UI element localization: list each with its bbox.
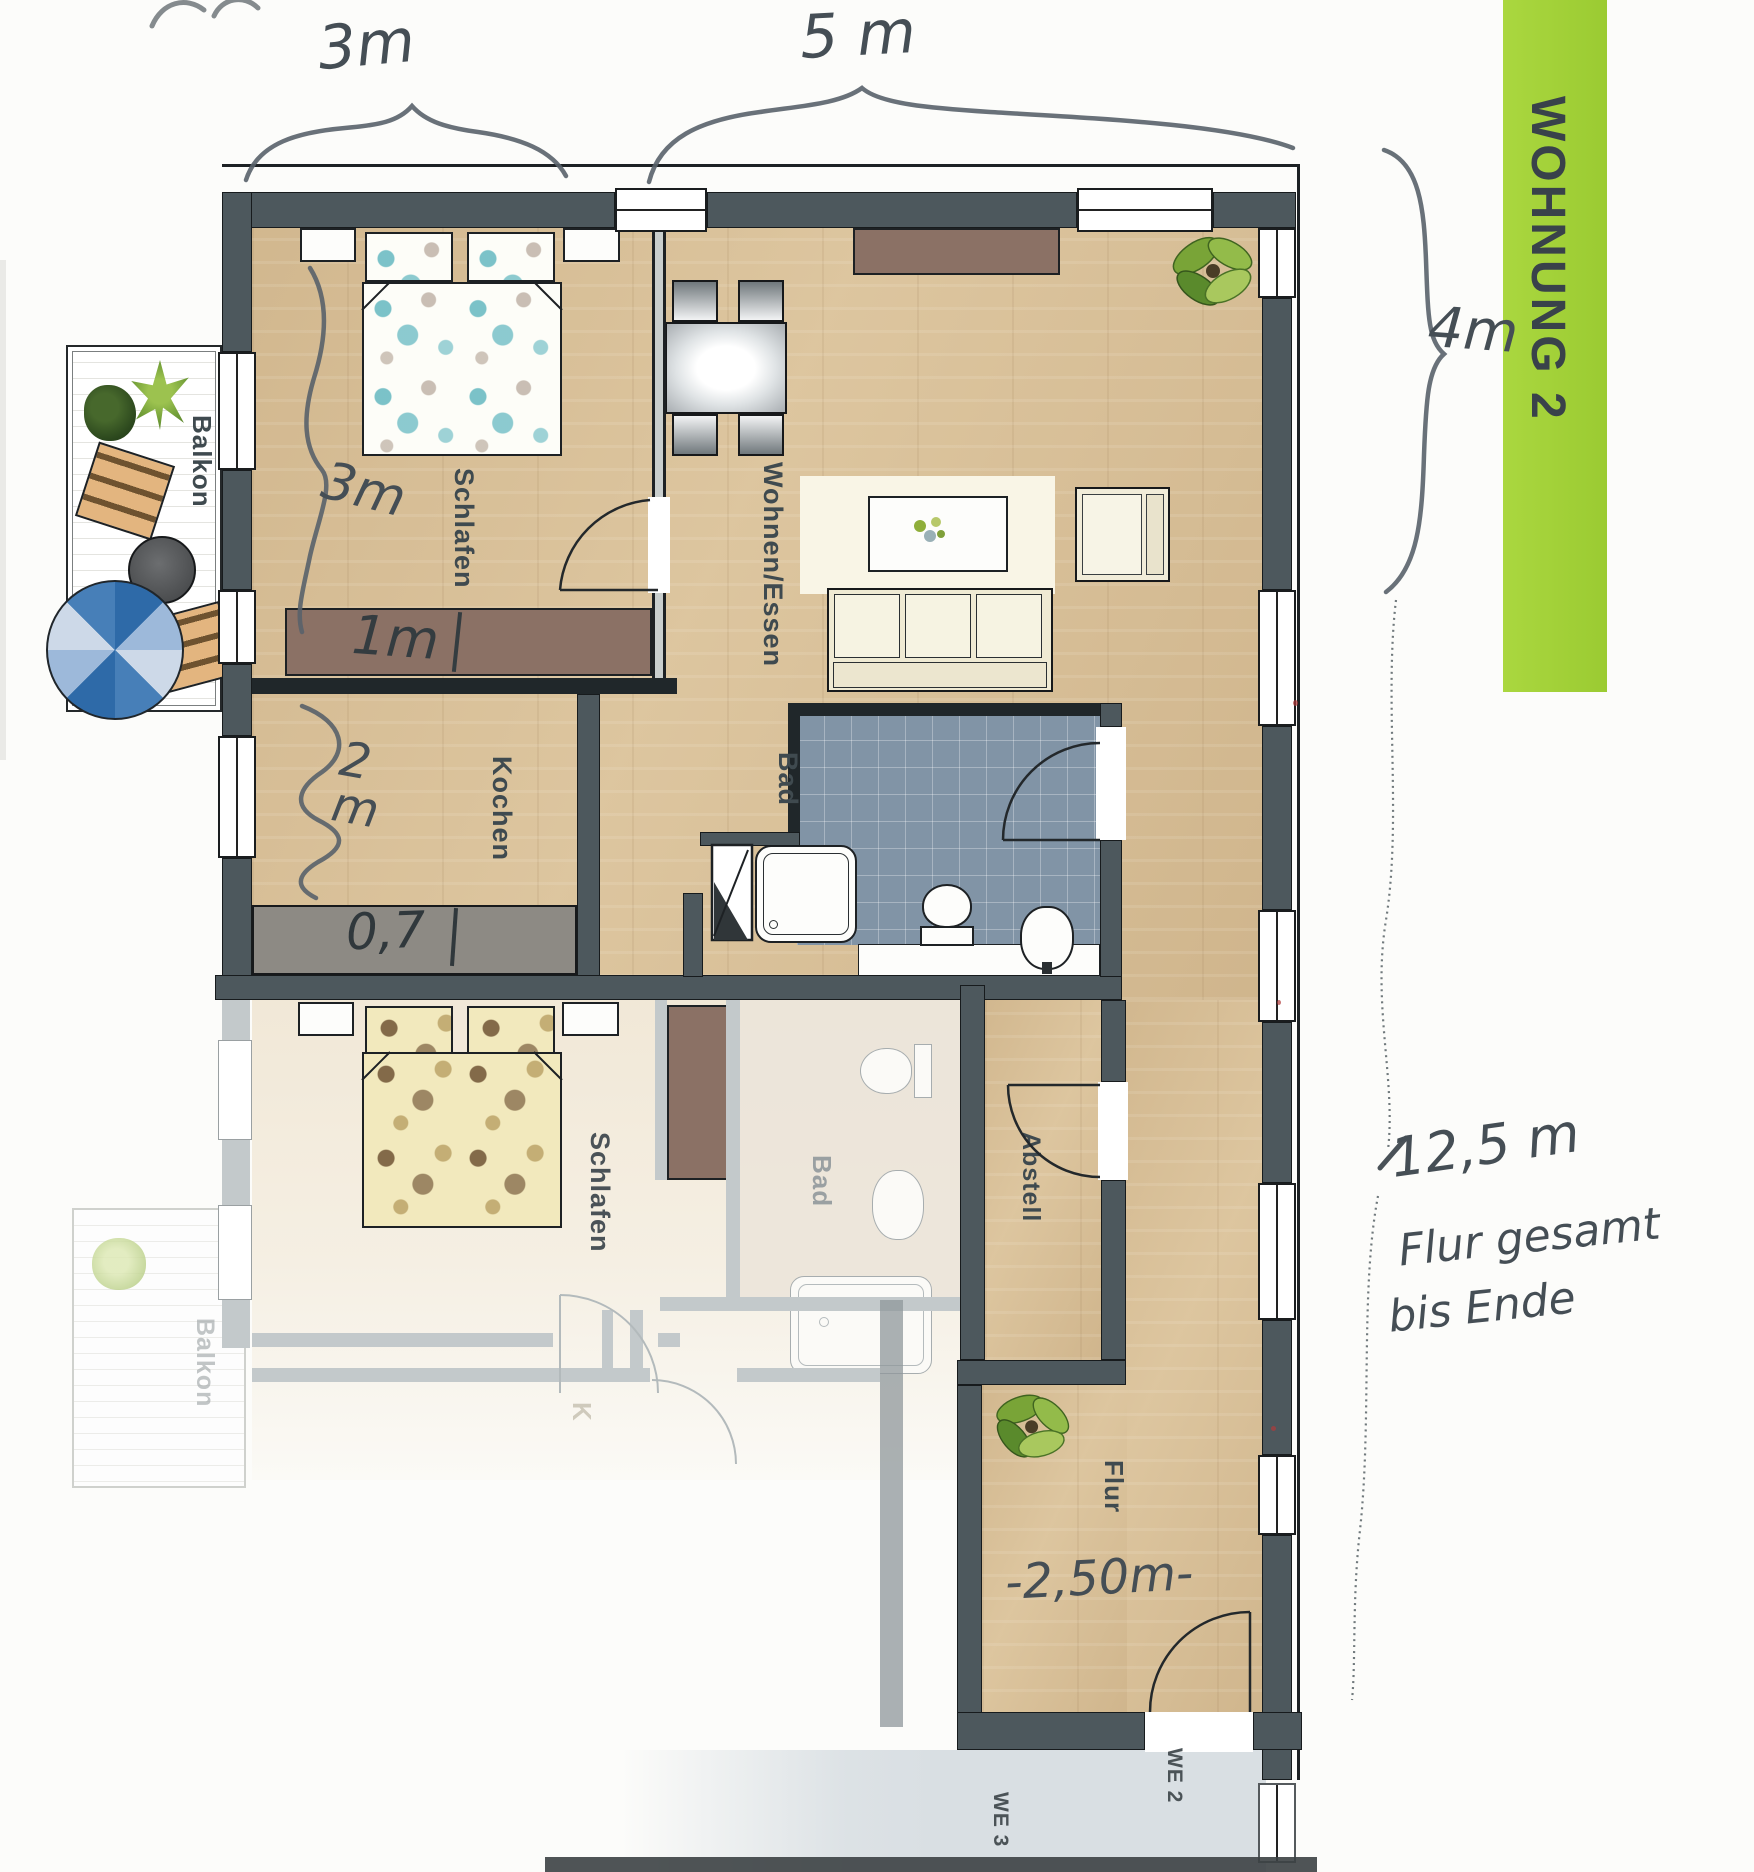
- bed-pillow: [365, 232, 453, 282]
- window: [1077, 188, 1213, 232]
- parasol-icon: [46, 580, 184, 720]
- wall-faded: [602, 1310, 613, 1370]
- armchair-seat: [1082, 494, 1142, 575]
- dining-chair: [738, 414, 784, 456]
- nightstand: [298, 1002, 354, 1036]
- window-faded: [218, 1040, 252, 1140]
- room-label-schlafen2: Schlafen: [584, 1132, 615, 1253]
- wall-faded: [660, 1297, 960, 1311]
- wall-bad1-right: [1100, 840, 1122, 977]
- wall-faded: [737, 1368, 880, 1382]
- door-opening: [1096, 727, 1126, 840]
- dining-chair: [672, 414, 718, 456]
- wall-bottom: [957, 1712, 1145, 1750]
- sofa-cushion: [976, 594, 1042, 658]
- wall-abstell-left: [960, 985, 985, 1360]
- floor-plan-scan: Schlafen Wohnen/Essen Kochen Bad Schlafe…: [0, 0, 1754, 1872]
- wall-kochen-right: [577, 694, 600, 1000]
- window: [1258, 228, 1296, 298]
- dining-chair: [738, 280, 784, 322]
- bush-icon: [92, 1238, 146, 1290]
- double-bed: [362, 1052, 562, 1228]
- window: [1258, 1183, 1296, 1320]
- annotation-flur-total-2: Flur gesamt: [1396, 1198, 1662, 1276]
- window: [1258, 590, 1296, 726]
- wall-faded: [252, 1368, 650, 1382]
- wall-bad1-top: [788, 703, 1122, 716]
- toilet-icon: [922, 884, 972, 928]
- sofa: [827, 588, 1053, 692]
- sofa-cushion: [905, 594, 971, 658]
- annotation-flur-total-3: bis Ende: [1386, 1272, 1578, 1342]
- scan-edge: [545, 1857, 1317, 1872]
- wall-horizontal-mid: [215, 975, 1122, 1000]
- room-label-bad1: Bad: [772, 752, 803, 806]
- plant-icon: [1168, 226, 1258, 321]
- wall-bottom: [1253, 1712, 1302, 1750]
- wall-top: [1213, 192, 1296, 228]
- table-deco-icon: [908, 512, 952, 552]
- balcony-door: [218, 352, 256, 470]
- floor-corridor: [1122, 1000, 1262, 1715]
- wall-right: [1262, 726, 1292, 910]
- toilet-tank: [914, 1044, 932, 1098]
- wall-schlafen-bottom: [252, 678, 677, 694]
- unit-label-we3: WE 3: [988, 1792, 1012, 1847]
- annotation-flur-total-1: 12,5 m: [1387, 1101, 1584, 1190]
- wall-flur-left: [957, 1385, 982, 1715]
- wall-right: [1262, 298, 1292, 590]
- wall-left: [222, 664, 252, 736]
- wall-right: [1262, 1022, 1292, 1183]
- toilet-tank: [920, 926, 974, 946]
- annotation-height-wohnen: 4m: [1426, 295, 1521, 366]
- scan-speck: [1293, 700, 1298, 706]
- facade-line: [222, 164, 1300, 167]
- room-label-kochen2-fragment: K: [566, 1402, 597, 1422]
- wall-faded: [880, 1300, 903, 1727]
- room-label-balkon2: Balkon: [190, 1318, 219, 1407]
- room-label-abstell: Abstell: [1016, 1132, 1045, 1222]
- wall-faded: [655, 1000, 667, 1180]
- sink-icon: [872, 1170, 924, 1240]
- window: [1258, 910, 1296, 1022]
- sofa-cushion: [834, 594, 900, 658]
- wall-left: [222, 470, 252, 590]
- window-faded: [218, 1205, 252, 1300]
- bed-pillow: [365, 1006, 453, 1054]
- wall-faded: [252, 1333, 553, 1347]
- wall-abstell-right: [1101, 1180, 1126, 1360]
- scan-edge: [0, 260, 6, 760]
- annotation-counter-depth: 0,7: [345, 901, 427, 962]
- window: [615, 188, 707, 232]
- dining-chair: [672, 280, 718, 322]
- wall-bad1-right: [1100, 703, 1122, 727]
- sofa-back: [833, 662, 1047, 688]
- toilet-icon: [860, 1048, 912, 1094]
- wall-abstell-right: [1101, 1000, 1126, 1082]
- annotation-wardrobe-depth: 1m: [350, 603, 441, 672]
- room-label-kochen: Kochen: [486, 756, 517, 861]
- wall-faded: [630, 1310, 643, 1370]
- unit-label-we2: WE 2: [1162, 1748, 1186, 1803]
- banner-title: WOHNUNG 2: [1520, 96, 1575, 422]
- entry-door-opening: [1145, 1712, 1253, 1752]
- wall-top: [707, 192, 1077, 228]
- annotation-width-schlafen: 3m: [315, 6, 417, 84]
- room-label-schlafen1: Schlafen: [448, 468, 479, 589]
- room-label-wohnen-essen: Wohnen/Essen: [757, 462, 788, 667]
- armchair: [1075, 487, 1170, 582]
- bed-pillow: [467, 232, 555, 282]
- nightstand: [562, 1002, 619, 1036]
- wall-faded: [726, 1000, 740, 1310]
- shower: [755, 845, 857, 943]
- door-opening: [648, 497, 670, 593]
- facade-line: [1297, 164, 1300, 1780]
- double-bed: [362, 282, 562, 456]
- wall-bad1-jog: [700, 832, 800, 846]
- nightstand: [300, 228, 356, 262]
- room-label-flur: Flur: [1098, 1460, 1129, 1513]
- sink-tap: [1042, 962, 1052, 974]
- bush-icon: [84, 385, 136, 441]
- shower-drain: [769, 920, 778, 929]
- wall-schlafen-wohnen: [652, 593, 666, 678]
- wardrobe: [285, 608, 652, 676]
- wall-left: [222, 192, 252, 352]
- window: [218, 736, 256, 858]
- nightstand: [563, 228, 620, 262]
- wall-right: [1262, 1320, 1292, 1455]
- wall-faded: [658, 1333, 680, 1347]
- window: [1258, 1455, 1296, 1535]
- room-label-balkon1: Balkon: [186, 415, 217, 508]
- annotation-width-wohnen: 5 m: [798, 0, 917, 73]
- bathtub: [790, 1276, 932, 1374]
- corner-scribble: [152, 0, 258, 26]
- bathtub-drain: [819, 1317, 829, 1327]
- sideboard: [853, 228, 1060, 275]
- door-opening: [1098, 1082, 1128, 1180]
- window: [218, 590, 256, 664]
- sink-icon: [1020, 906, 1074, 970]
- wall-top: [222, 192, 615, 228]
- annotation-flur-width: -2,50m-: [1004, 1545, 1195, 1611]
- bed-pillow: [467, 1006, 555, 1054]
- wall-shaft-side: [683, 893, 703, 977]
- wall-abstell-bottom: [957, 1360, 1126, 1385]
- scan-speck: [1271, 1426, 1276, 1431]
- room-label-bad2: Bad: [806, 1155, 837, 1207]
- wall-schlafen-wohnen: [652, 228, 666, 497]
- stairwell-window: [1258, 1783, 1296, 1863]
- armchair-back: [1146, 494, 1164, 575]
- scan-speck: [1277, 1000, 1281, 1005]
- dining-table: [665, 322, 787, 414]
